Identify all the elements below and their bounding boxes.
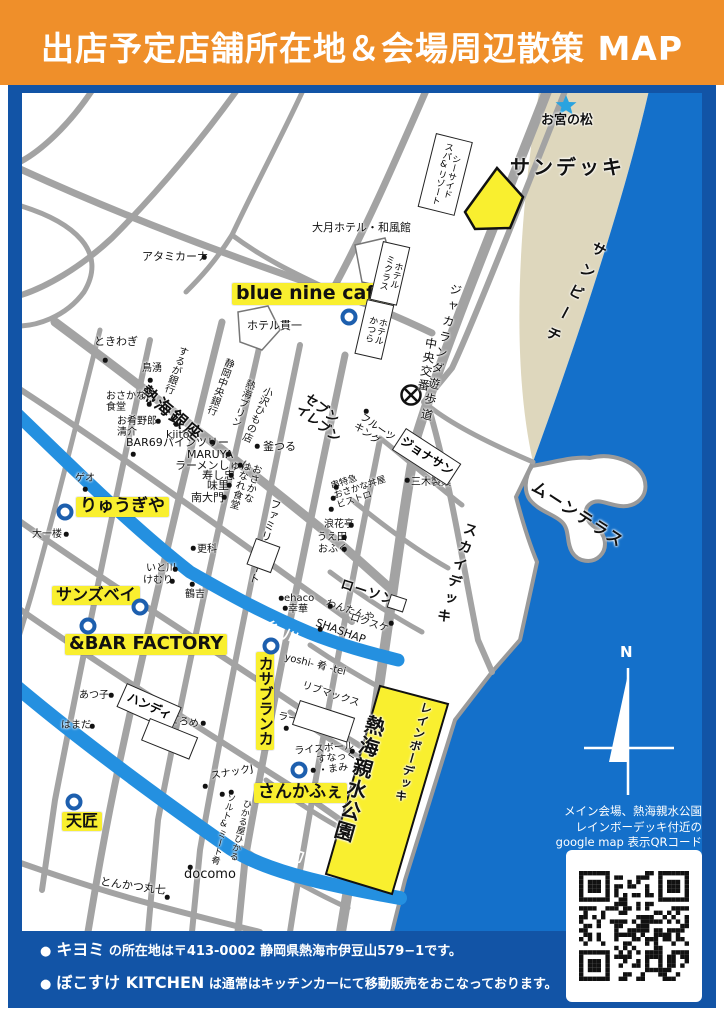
footer-line-pokosuke: ●ぼこすけ KITCHEN は通常はキッチンカーにて移動販売をおこなっております… xyxy=(40,969,560,993)
highlight-label-sankafe: さんかふぇ xyxy=(254,783,347,803)
highlight-label-casablanca: カサブランカ xyxy=(256,652,274,750)
qr-note-line: google map 表示QRコード xyxy=(430,835,702,851)
label-kamatsuru: 釜つる xyxy=(263,441,296,453)
poi-dot xyxy=(311,768,316,773)
label-hotel-kanichi: ホテル貫一 xyxy=(247,320,302,332)
footer-text: は通常はキッチンカーにて移動販売をおこなっております。 xyxy=(204,977,557,992)
poi-dot xyxy=(174,422,179,427)
poi-dot xyxy=(342,547,347,552)
poi-dot xyxy=(279,596,284,601)
poi-dot xyxy=(191,546,196,551)
label-tsuruyoshi: 鶴吉 xyxy=(185,589,205,600)
poi-dot xyxy=(188,865,193,870)
store-name-kiyomi: キヨミ xyxy=(56,940,104,959)
poi-dot xyxy=(203,784,208,789)
poi-dot xyxy=(229,790,234,795)
store-name-pokosuke: ぼこすけ KITCHEN xyxy=(56,973,204,992)
label-toriwaki: 鳥湧 xyxy=(142,363,162,374)
label-osakana-shokudo: おさかな 食堂 xyxy=(106,391,146,413)
poi-dot xyxy=(283,606,288,611)
label-ehaco: ehaco xyxy=(284,593,314,604)
poi-dot xyxy=(331,496,336,501)
label-tokiwagi: ときわぎ xyxy=(94,336,138,348)
poi-dot xyxy=(148,378,153,383)
poi-dot xyxy=(109,693,114,698)
poi-dot xyxy=(131,452,136,457)
marker-sankafe xyxy=(291,762,308,779)
label-kouka: 幸華 xyxy=(288,604,308,615)
highlight-label-sunsbay: サンズベイ xyxy=(52,586,140,605)
qr-note: メイン会場、熱海親水公園レインボーデッキ付近のgoogle map 表示QRコー… xyxy=(430,804,702,851)
poi-dot xyxy=(201,721,206,726)
poi-dot xyxy=(350,749,355,754)
poi-dot xyxy=(342,535,347,540)
label-sun-deck: サンデッキ xyxy=(510,156,625,178)
poi-dot xyxy=(220,792,225,797)
qr-code xyxy=(566,850,702,1002)
label-geo: ゲオ xyxy=(75,473,95,484)
poi-dot xyxy=(238,463,243,468)
label-docomo: docomo xyxy=(184,868,236,882)
poi-dot xyxy=(334,485,339,490)
marker-blue-nine-cafe xyxy=(341,309,358,326)
poi-dot xyxy=(210,440,215,445)
label-compass-north: N xyxy=(620,644,633,661)
marker-tensho xyxy=(66,794,83,811)
poi-dot xyxy=(165,895,170,900)
label-kemuri: けむり xyxy=(143,575,173,586)
header-banner: 出店予定店舗所在地＆会場周辺散策 MAP xyxy=(0,0,724,85)
poi-dot xyxy=(349,523,354,528)
poi-dot xyxy=(318,627,323,632)
poi-dot xyxy=(226,452,231,457)
page-title: 出店予定店舗所在地＆会場周辺散策 MAP xyxy=(0,22,724,70)
label-nandaimon: 南大門 xyxy=(191,492,224,504)
label-itokawa-restaurant: いと川 xyxy=(146,563,176,574)
label-hamada: はまだ xyxy=(61,720,91,731)
label-omiya-no-matsu: お宮の松 xyxy=(541,114,593,128)
marker-sunsbay xyxy=(132,599,149,616)
label-otsuki-hotel: 大月ホテル・和風館 xyxy=(312,222,411,234)
label-atamikana: アタミカーナ xyxy=(142,251,208,263)
poi-dot xyxy=(103,358,108,363)
highlight-label-ryugiya: りゅうぎや xyxy=(76,497,169,517)
poi-dot xyxy=(90,724,95,729)
poi-dot xyxy=(170,579,175,584)
poi-dot xyxy=(173,567,178,572)
marker-ryugiya xyxy=(57,504,74,521)
label-bar69: BAR69 xyxy=(126,437,163,449)
label-sarashina: 更科 xyxy=(197,544,217,555)
scanned-map-page: 出店予定店舗所在地＆会場周辺散策 MAP xyxy=(0,0,724,1024)
marker-casablanca xyxy=(263,638,280,655)
qr-note-line: レインボーデッキ付近の xyxy=(430,820,702,836)
footer-notes: ●キヨミ の所在地は〒413-0002 静岡県熱海市伊豆山579−1です。 ●ぼ… xyxy=(40,936,560,1002)
poi-dot xyxy=(389,621,394,626)
poi-dot xyxy=(202,255,207,260)
bullet-icon: ● xyxy=(40,977,51,992)
label-atsuko: あつ子 xyxy=(79,690,109,701)
poi-dot xyxy=(364,409,369,414)
poi-dot xyxy=(329,507,334,512)
poi-dot xyxy=(229,473,234,478)
footer-text: の所在地は〒413-0002 静岡県熱海市伊豆山579−1です。 xyxy=(104,944,462,959)
poi-dot xyxy=(328,604,333,609)
poi-dot xyxy=(405,478,410,483)
poi-dot xyxy=(83,487,88,492)
poi-dot xyxy=(190,582,195,587)
label-daiichiro: 大一楼 xyxy=(32,529,62,540)
marker-bar-factory xyxy=(80,618,97,635)
poi-dot xyxy=(227,483,232,488)
highlight-label-bar-factory: &BAR FACTORY xyxy=(65,634,227,655)
poi-dot xyxy=(156,419,161,424)
poi-dot xyxy=(255,444,260,449)
qr-pattern xyxy=(579,871,689,981)
highlight-label-tensho: 天匠 xyxy=(62,812,102,831)
bullet-icon: ● xyxy=(40,944,51,959)
poi-dot xyxy=(64,532,69,537)
poi-dot xyxy=(147,402,152,407)
poi-dot xyxy=(284,726,289,731)
footer-line-kiyomi: ●キヨミ の所在地は〒413-0002 静岡県熱海市伊豆山579−1です。 xyxy=(40,936,560,960)
poi-dot xyxy=(222,495,227,500)
qr-note-line: メイン会場、熱海親水公園 xyxy=(430,804,702,820)
label-osakana-yaro-seisuke: お肴野郎 清介 xyxy=(117,416,157,438)
